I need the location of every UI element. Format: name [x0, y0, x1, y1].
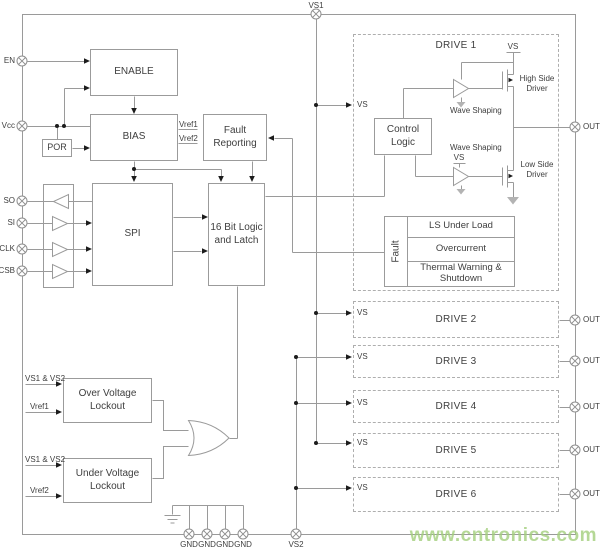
drive3-vs-label: VS: [357, 353, 368, 361]
bias-block: BIAS: [90, 114, 178, 161]
spi-block: SPI: [92, 183, 173, 286]
pin-si-pad: [17, 218, 27, 228]
vref1-stub-label: Vref1: [179, 121, 198, 129]
pin-vs2-label: VS2: [284, 541, 308, 549]
net-gnd-bus: [173, 506, 244, 530]
vref2-stub-label: Vref2: [179, 135, 198, 143]
low-side-driver-text: Low Side Driver: [517, 160, 557, 180]
pin-gnd3-pad: [220, 529, 230, 539]
pin-out1-pad: [570, 122, 580, 132]
pin-out2-pad: [570, 315, 580, 325]
drive2-label: DRIVE 2: [354, 302, 558, 337]
low-side-driver-label: Low Side Driver: [517, 160, 557, 180]
lowside-vs-label: VS: [450, 154, 468, 162]
pin-si-label: SI: [7, 219, 15, 227]
logic-latch-label: 16 Bit Logic and Latch: [209, 222, 264, 247]
uvl-vs-input-label: VS1 & VS2: [25, 456, 65, 464]
pin-so-label: SO: [3, 197, 15, 205]
drive5-label: DRIVE 5: [354, 434, 558, 467]
pin-out5-pad: [570, 445, 580, 455]
net-ovl-or: [153, 401, 189, 431]
drive5-box: DRIVE 5: [353, 433, 559, 468]
pin-gnd1-pad: [184, 529, 194, 539]
or-gate-icon: [189, 421, 230, 456]
pin-out6-pad: [570, 489, 580, 499]
pin-vs1-label: VS1: [302, 2, 330, 10]
input-buffer-block: [43, 184, 74, 288]
ovl-label: Over Voltage Lockout: [64, 388, 151, 413]
pin-out4-pad: [570, 402, 580, 412]
net-vs1-bus: [317, 15, 347, 444]
pin-out3-label: OUT3: [583, 357, 600, 365]
pin-sclk-label: SCLK: [0, 245, 15, 253]
drive5-vs-label: VS: [357, 439, 368, 447]
drive2-vs-label: VS: [357, 309, 368, 317]
drive6-label: DRIVE 6: [354, 478, 558, 511]
uvl-label: Under Voltage Lockout: [64, 468, 151, 493]
watermark: www.cntronics.com: [410, 525, 597, 547]
pin-vs1-pad: [311, 9, 321, 19]
enable-label: ENABLE: [114, 66, 153, 79]
fault-reporting-block: Fault Reporting: [203, 114, 267, 161]
high-side-driver-text: High Side Driver: [517, 74, 557, 94]
ovl-vref-input-label: Vref1: [30, 403, 49, 411]
net-out-wires: [560, 321, 571, 495]
net-bias-down: [135, 162, 222, 178]
pin-en-label: EN: [4, 57, 15, 65]
net-or-logic: [230, 287, 238, 439]
pin-out4-label: OUT4: [583, 403, 600, 411]
highside-wave-shaping-label: Wave Shaping: [450, 107, 502, 115]
drive1-vs-label: VS: [357, 101, 368, 109]
pin-csb-label: CSB: [0, 267, 15, 275]
fault-reporting-label: Fault Reporting: [204, 125, 266, 150]
block-diagram-canvas: ENABLE BIAS POR Fault Reporting SPI 16 B…: [0, 0, 600, 550]
pin-sclk-pad: [17, 244, 27, 254]
por-block: POR: [42, 139, 72, 157]
pin-out6-label: OUT6: [583, 490, 600, 498]
drive3-label: DRIVE 3: [354, 346, 558, 377]
pin-vcc-label: Vcc: [2, 122, 15, 130]
uvl-vref-input-label: Vref2: [30, 487, 49, 495]
net-spi-logic: [174, 218, 202, 252]
spi-label: SPI: [124, 228, 140, 241]
ground-symbol-icon: [165, 516, 181, 524]
pin-so-pad: [17, 196, 27, 206]
drive4-label: DRIVE 4: [354, 391, 558, 422]
pin-out1-label: OUT1: [583, 123, 600, 131]
high-side-driver-label: High Side Driver: [517, 74, 557, 94]
logic-latch-block: 16 Bit Logic and Latch: [208, 183, 265, 286]
drive4-vs-label: VS: [357, 399, 368, 407]
ovl-vs-input-label: VS1 & VS2: [25, 375, 65, 383]
pin-vs2-pad: [291, 529, 301, 539]
net-uvl-or: [153, 447, 189, 479]
pin-gnd2-pad: [202, 529, 212, 539]
pin-out5-label: OUT5: [583, 446, 600, 454]
enable-block: ENABLE: [90, 49, 178, 96]
drive1-title: DRIVE 1: [354, 40, 558, 51]
pin-vcc-pad: [17, 121, 27, 131]
over-voltage-lockout-block: Over Voltage Lockout: [63, 378, 152, 423]
pin-out2-label: OUT2: [583, 316, 600, 324]
pin-csb-pad: [17, 266, 27, 276]
drive2-box: DRIVE 2: [353, 301, 559, 338]
drive3-box: DRIVE 3: [353, 345, 559, 378]
lowside-wave-shaping-label: Wave Shaping: [450, 144, 502, 152]
highside-vs-label: VS: [504, 43, 522, 51]
pin-gnd4-pad: [238, 529, 248, 539]
net-vcc: [28, 89, 91, 140]
bias-label: BIAS: [123, 131, 146, 144]
drive6-vs-label: VS: [357, 484, 368, 492]
drive6-box: DRIVE 6: [353, 477, 559, 512]
por-label: POR: [47, 142, 67, 153]
pin-en-pad: [17, 56, 27, 66]
under-voltage-lockout-block: Under Voltage Lockout: [63, 458, 152, 503]
drive4-box: DRIVE 4: [353, 390, 559, 423]
pin-out3-pad: [570, 356, 580, 366]
pin-gnd4-label: GND: [231, 541, 255, 549]
